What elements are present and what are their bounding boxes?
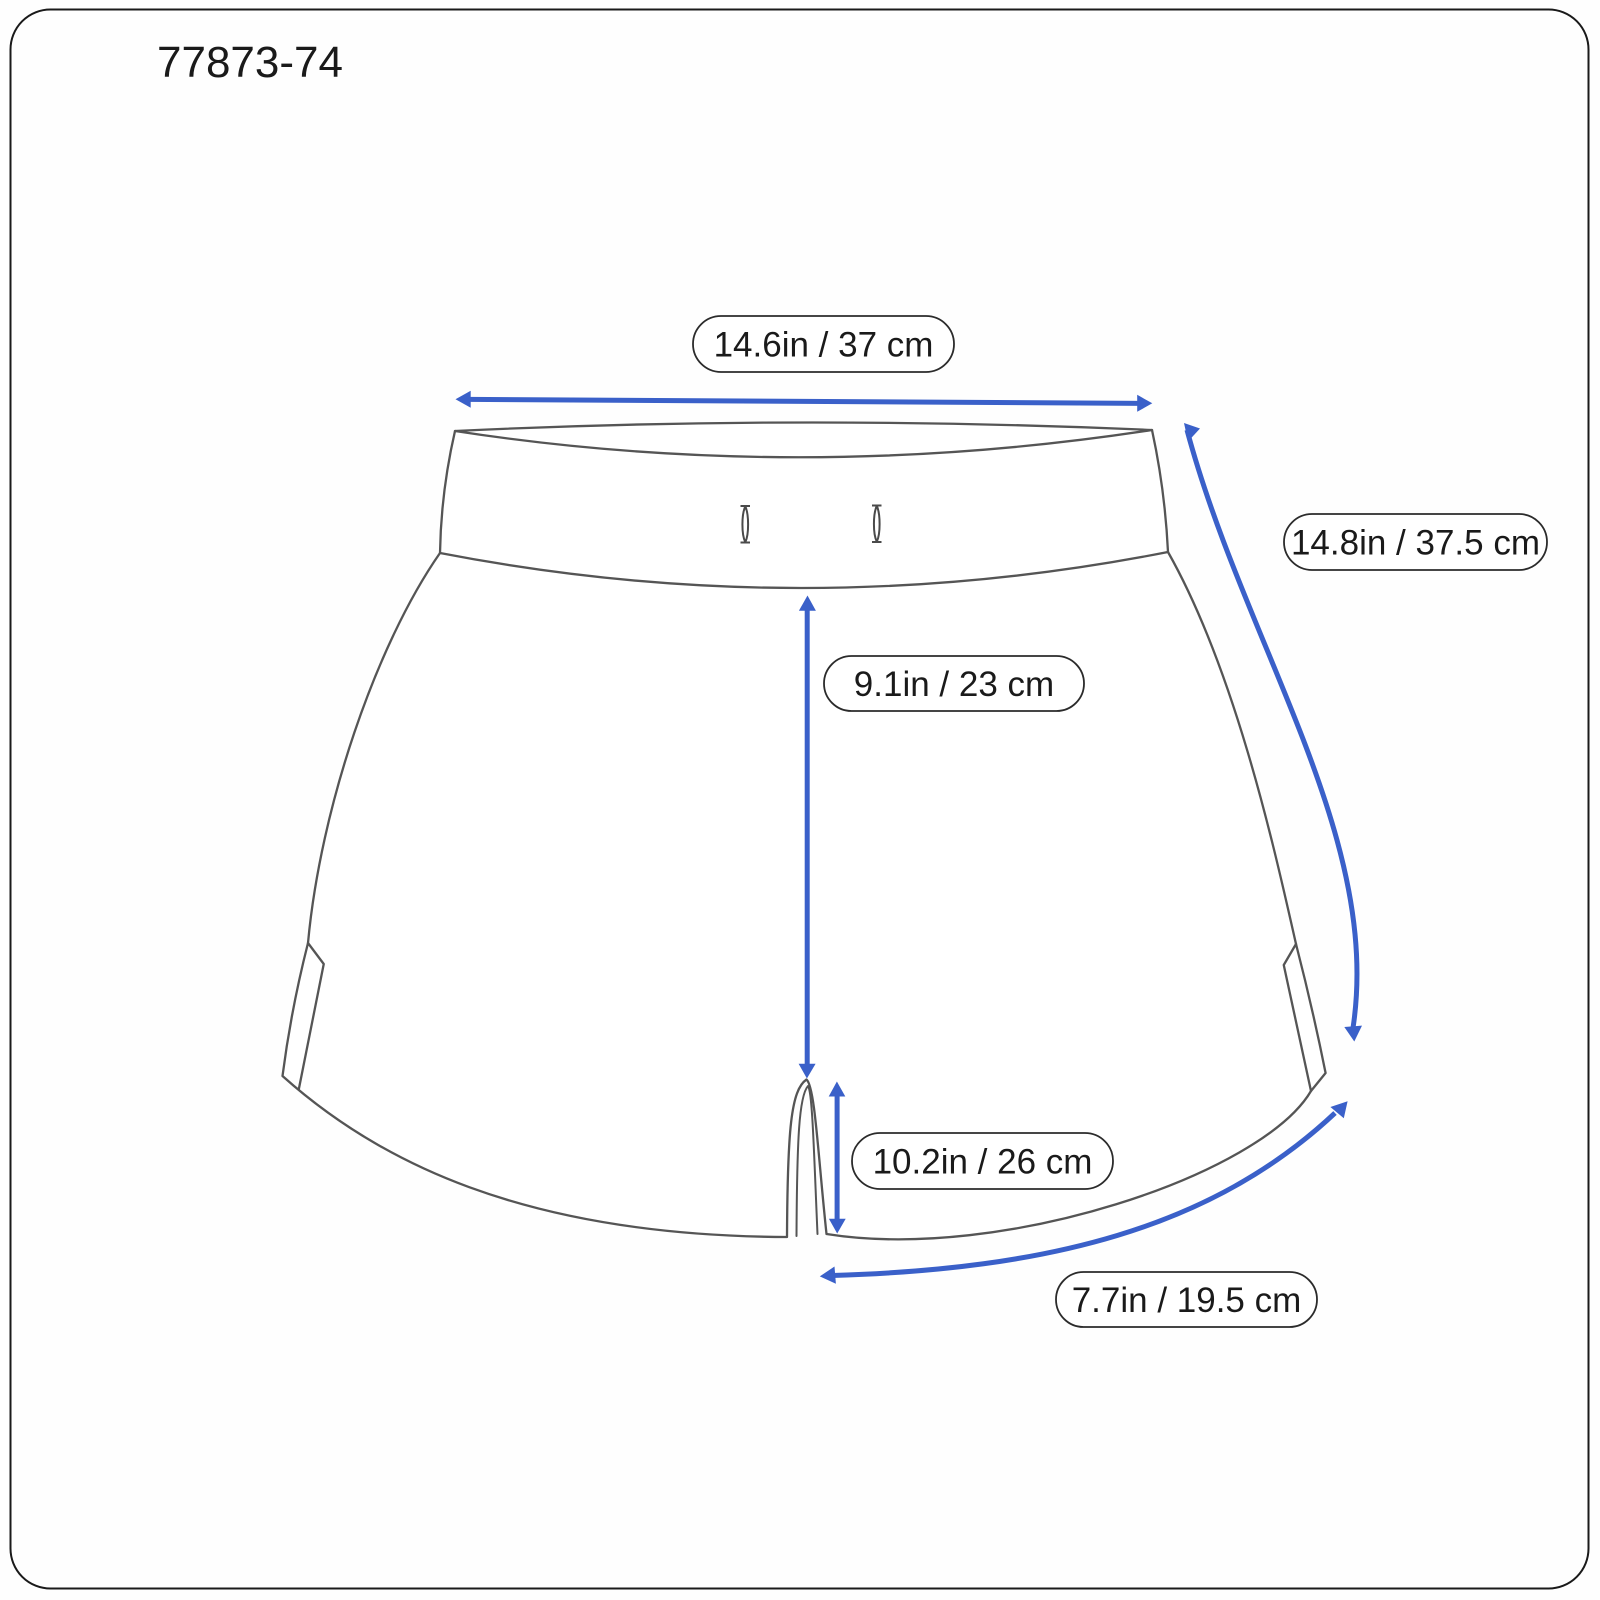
svg-text:14.8in / 37.5 cm: 14.8in / 37.5 cm — [1291, 524, 1540, 563]
svg-text:10.2in / 26 cm: 10.2in / 26 cm — [873, 1143, 1093, 1182]
svg-text:77873-74: 77873-74 — [157, 38, 343, 87]
svg-text:9.1in / 23 cm: 9.1in / 23 cm — [854, 665, 1054, 704]
svg-text:14.6in / 37 cm: 14.6in / 37 cm — [714, 326, 934, 365]
svg-text:7.7in / 19.5 cm: 7.7in / 19.5 cm — [1072, 1281, 1302, 1320]
